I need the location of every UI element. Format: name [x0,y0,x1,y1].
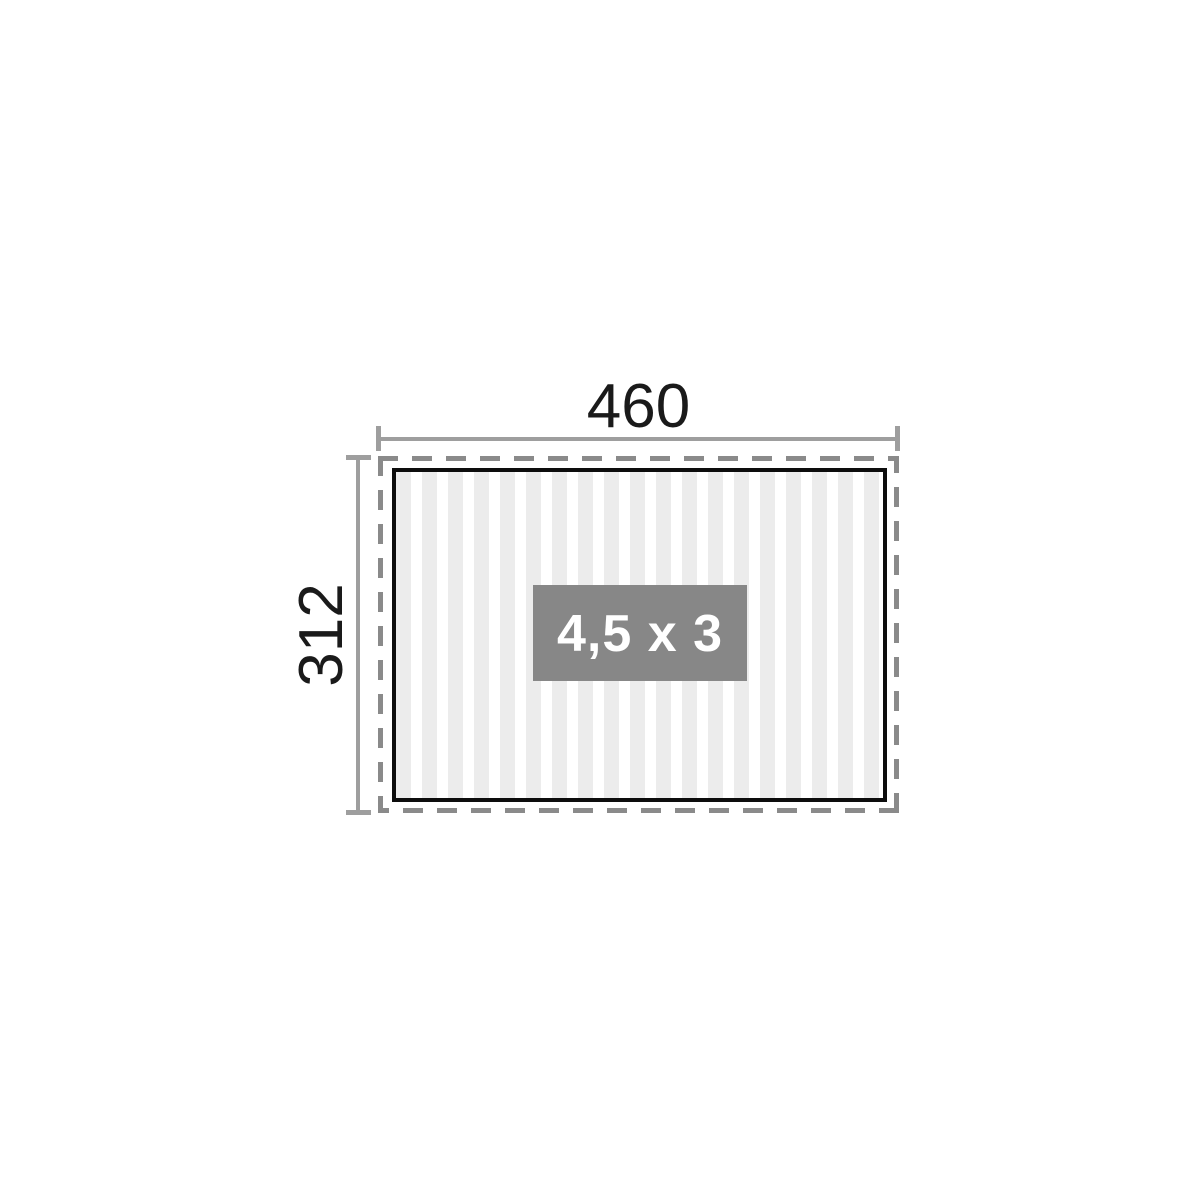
height-dimension-tick-bottom [346,810,371,815]
size-label: 4,5 x 3 [557,606,723,660]
width-dimension-tick-right [895,426,900,451]
dimension-diagram: 460 312 4,5 x 3 [0,0,1200,1200]
width-dimension-label: 460 [378,376,899,438]
roof-outline-edge-left [378,456,383,813]
roof-outline-edge-right [894,456,899,813]
roof-outline-edge-top [378,456,899,461]
roof-outline-edge-bottom [378,808,899,813]
width-dimension-tick-left [376,426,381,451]
width-dimension-line [378,437,899,441]
size-label-box: 4,5 x 3 [533,585,747,681]
height-dimension-line [356,457,360,814]
height-dimension-label: 312 [291,505,353,765]
height-dimension-tick-top [346,455,371,460]
